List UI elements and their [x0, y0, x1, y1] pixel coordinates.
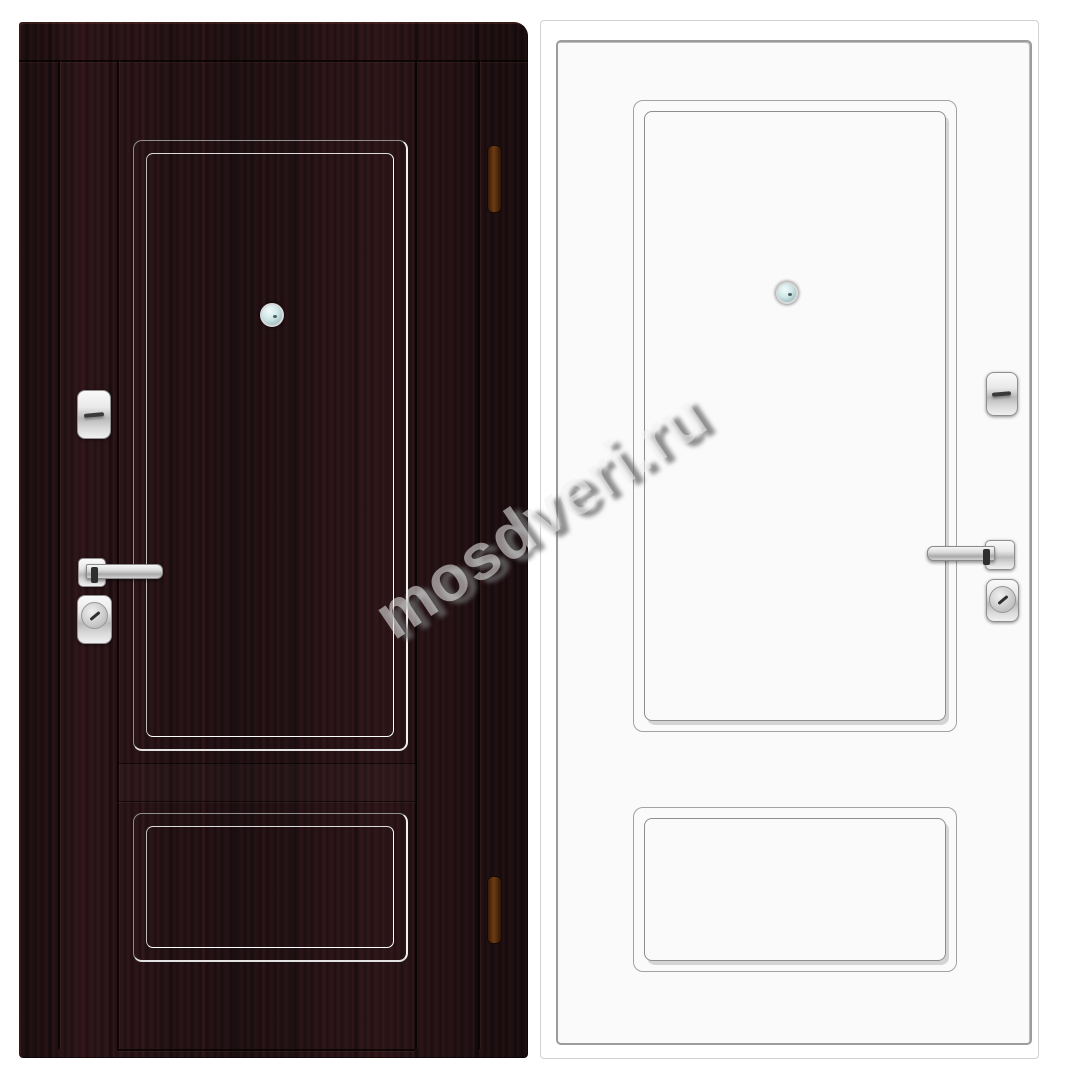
upper-panel-molding-back — [633, 100, 957, 732]
door-back-white — [556, 40, 1032, 1045]
thumbturn-slot-back — [992, 392, 1011, 398]
night-latch-lock — [77, 390, 111, 439]
keyhole — [89, 610, 100, 620]
hinge-bottom — [487, 876, 502, 944]
thumbturn-slot — [84, 412, 104, 418]
lower-panel-inner-molding-back — [644, 818, 946, 961]
cylinder-ring-back — [989, 586, 1016, 613]
lower-panel-inner-molding — [146, 826, 394, 948]
handle-neck-shadow — [91, 567, 98, 583]
peephole — [260, 303, 284, 327]
door-front-wenge — [19, 22, 528, 1058]
keyhole-back — [997, 594, 1008, 604]
lever-handle-back — [927, 546, 995, 561]
cylinder-lock — [77, 595, 112, 644]
product-photo-two-door-views: mosdveri.ru — [0, 0, 1073, 1067]
upper-panel-inner-molding-back — [644, 111, 946, 721]
cylinder-ring — [81, 602, 108, 629]
upper-panel-molding — [133, 140, 408, 751]
hinge-top — [487, 145, 502, 213]
night-latch-lock-back — [986, 372, 1018, 416]
bottom-rail-seam — [117, 1049, 415, 1051]
lever-handle — [86, 564, 163, 579]
peephole-back — [776, 282, 798, 304]
lower-panel-molding-back — [633, 807, 957, 972]
leaf-right-seam — [415, 60, 417, 1049]
handle-neck-shadow-back — [983, 549, 990, 565]
right-casing-seam — [478, 60, 480, 1049]
cylinder-lock-back — [986, 579, 1019, 622]
top-rail-seam — [19, 60, 528, 62]
mid-rail-band — [117, 763, 417, 802]
upper-panel-inner-molding — [146, 153, 394, 737]
leaf-left-seam — [117, 60, 119, 1049]
left-casing-seam — [58, 60, 60, 1049]
lower-panel-molding — [133, 813, 408, 962]
